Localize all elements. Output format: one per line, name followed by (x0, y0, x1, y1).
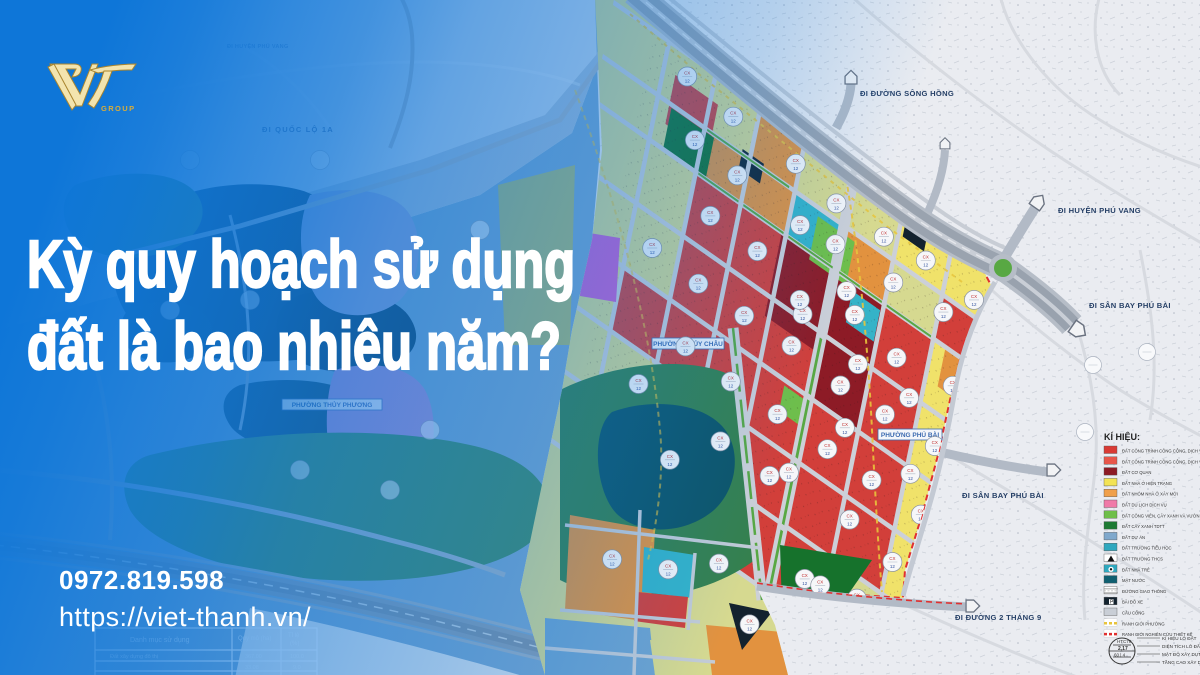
svg-text:GROUP: GROUP (101, 104, 136, 113)
